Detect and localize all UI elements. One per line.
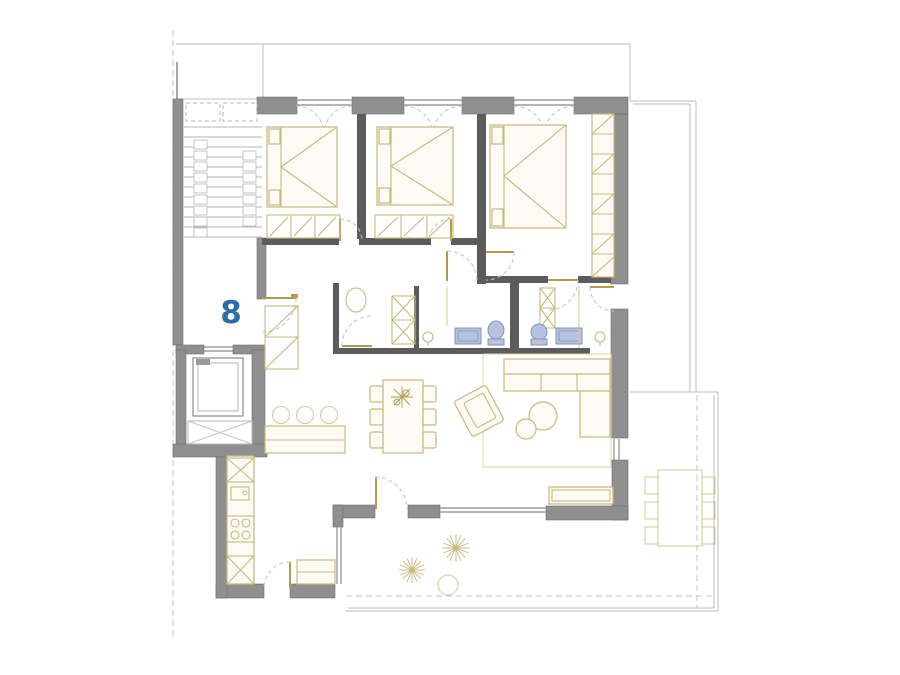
east-terrace: [645, 470, 715, 546]
elevator-counterweight: [196, 359, 210, 365]
south-terrace: [399, 534, 470, 595]
pedestal-sink: [423, 332, 433, 342]
wall: [262, 238, 339, 245]
terrace-cabinet: [297, 560, 335, 584]
laundry-door: [342, 316, 372, 346]
wall: [257, 238, 266, 299]
kitchen-counter: [227, 456, 254, 584]
master-bed: [490, 125, 566, 228]
doors: [262, 219, 614, 588]
sink-cabinet: [455, 328, 481, 344]
elevator-door: [204, 347, 233, 351]
pedestal-sink: [595, 332, 605, 342]
foot-bench: [267, 215, 340, 238]
toilet: [531, 324, 547, 345]
potted-plant-2: [399, 557, 425, 583]
wall: [333, 505, 343, 527]
armchair: [454, 385, 505, 437]
bath-closet-column: [540, 288, 555, 328]
elevator: [188, 358, 252, 444]
kitchen-terrace-door: [264, 562, 290, 588]
master-bedroom-door: [486, 252, 514, 280]
living-room: [454, 354, 613, 504]
wardrobe: [592, 114, 614, 277]
wall: [510, 276, 548, 283]
property-outline: [173, 30, 718, 638]
landing-closets-dashed: [186, 103, 257, 121]
floor-plan-drawing: 8: [0, 0, 900, 675]
wall: [333, 283, 339, 354]
wall: [451, 238, 477, 245]
shaft-cross-box: [188, 421, 252, 444]
double-bed: [267, 127, 337, 207]
wall: [408, 505, 440, 518]
wall: [173, 99, 183, 345]
foot-bench: [375, 215, 453, 238]
living-terrace-door: [375, 477, 407, 509]
window-living-east: [614, 439, 619, 460]
outdoor-table: [658, 470, 702, 546]
floor-plan-canvas: 8: [0, 0, 900, 675]
wall: [510, 283, 519, 354]
table-plant: [391, 386, 413, 408]
wall: [252, 350, 265, 450]
wall: [359, 238, 431, 245]
wall: [216, 450, 227, 598]
bathroom-1: [423, 287, 504, 346]
wall: [357, 114, 366, 239]
window-master-bedroom: [514, 100, 574, 105]
roof-line-top: [176, 44, 630, 101]
wall: [574, 97, 628, 114]
unit-number-text: 8: [220, 295, 242, 331]
round-planter: [438, 575, 458, 595]
stair-core-thin-lines: [176, 44, 263, 99]
window-dining-west-terrace: [337, 527, 341, 584]
wall: [352, 97, 404, 114]
window-bedroom-1: [296, 100, 352, 105]
elevator-car: [193, 358, 243, 416]
toilet: [488, 321, 504, 345]
wall: [257, 97, 297, 114]
wall: [611, 309, 628, 438]
sink-cabinet: [556, 328, 582, 344]
washer-dryer-stack: [392, 296, 415, 344]
bar-stool: [273, 407, 290, 424]
potted-plant-1: [442, 534, 470, 562]
wall: [176, 350, 186, 450]
wall: [462, 97, 514, 114]
step-number-boxes: [194, 140, 256, 237]
wall: [290, 584, 335, 598]
double-bed: [377, 127, 453, 205]
outdoor-chairs: [645, 477, 715, 544]
east-terrace-door: [590, 287, 614, 311]
dining-table: [383, 380, 423, 453]
staircase: [184, 103, 262, 237]
laundry-sink: [346, 288, 366, 312]
laundry-room: [346, 288, 415, 344]
kitchen-peninsula: [265, 407, 345, 454]
bar-stool: [297, 407, 314, 424]
bathroom-1-door: [447, 251, 477, 281]
dining-area: [370, 380, 436, 453]
wall: [477, 239, 486, 284]
entry-hall: [265, 306, 298, 369]
entry-door: [262, 294, 298, 332]
bathroom-2: [531, 286, 605, 348]
bar-stool: [321, 407, 338, 424]
wall: [337, 348, 590, 354]
entry-closet: [265, 306, 298, 369]
wall: [173, 444, 267, 457]
coffee-table-small: [516, 419, 536, 439]
wall: [477, 114, 486, 239]
wall: [546, 506, 628, 520]
window-bedroom-2: [404, 100, 462, 105]
sideboard: [549, 487, 613, 504]
unit-number-label: 8: [220, 295, 242, 331]
window-living-south: [440, 508, 546, 512]
bedroom-1: [267, 127, 340, 238]
